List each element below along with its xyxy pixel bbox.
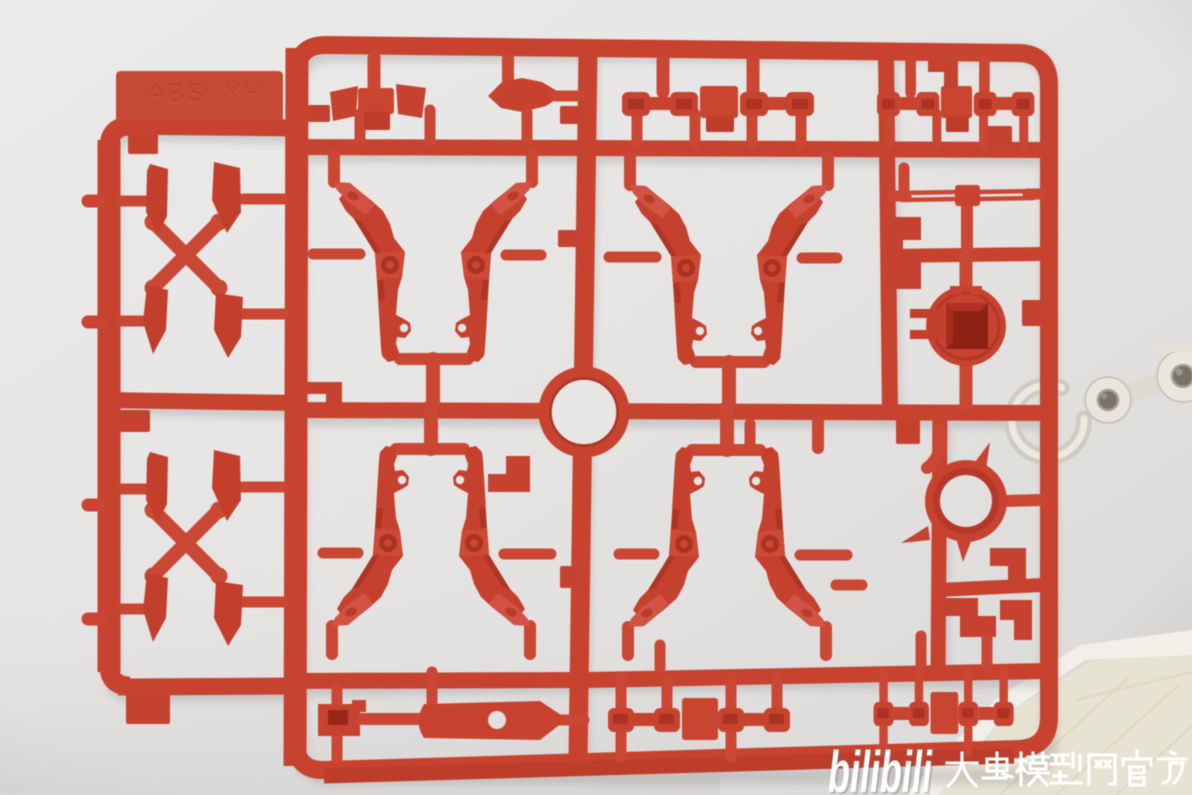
svg-text:bilibili: bilibili bbox=[828, 740, 933, 795]
svg-text:ABS YH: ABS YH bbox=[148, 81, 264, 109]
